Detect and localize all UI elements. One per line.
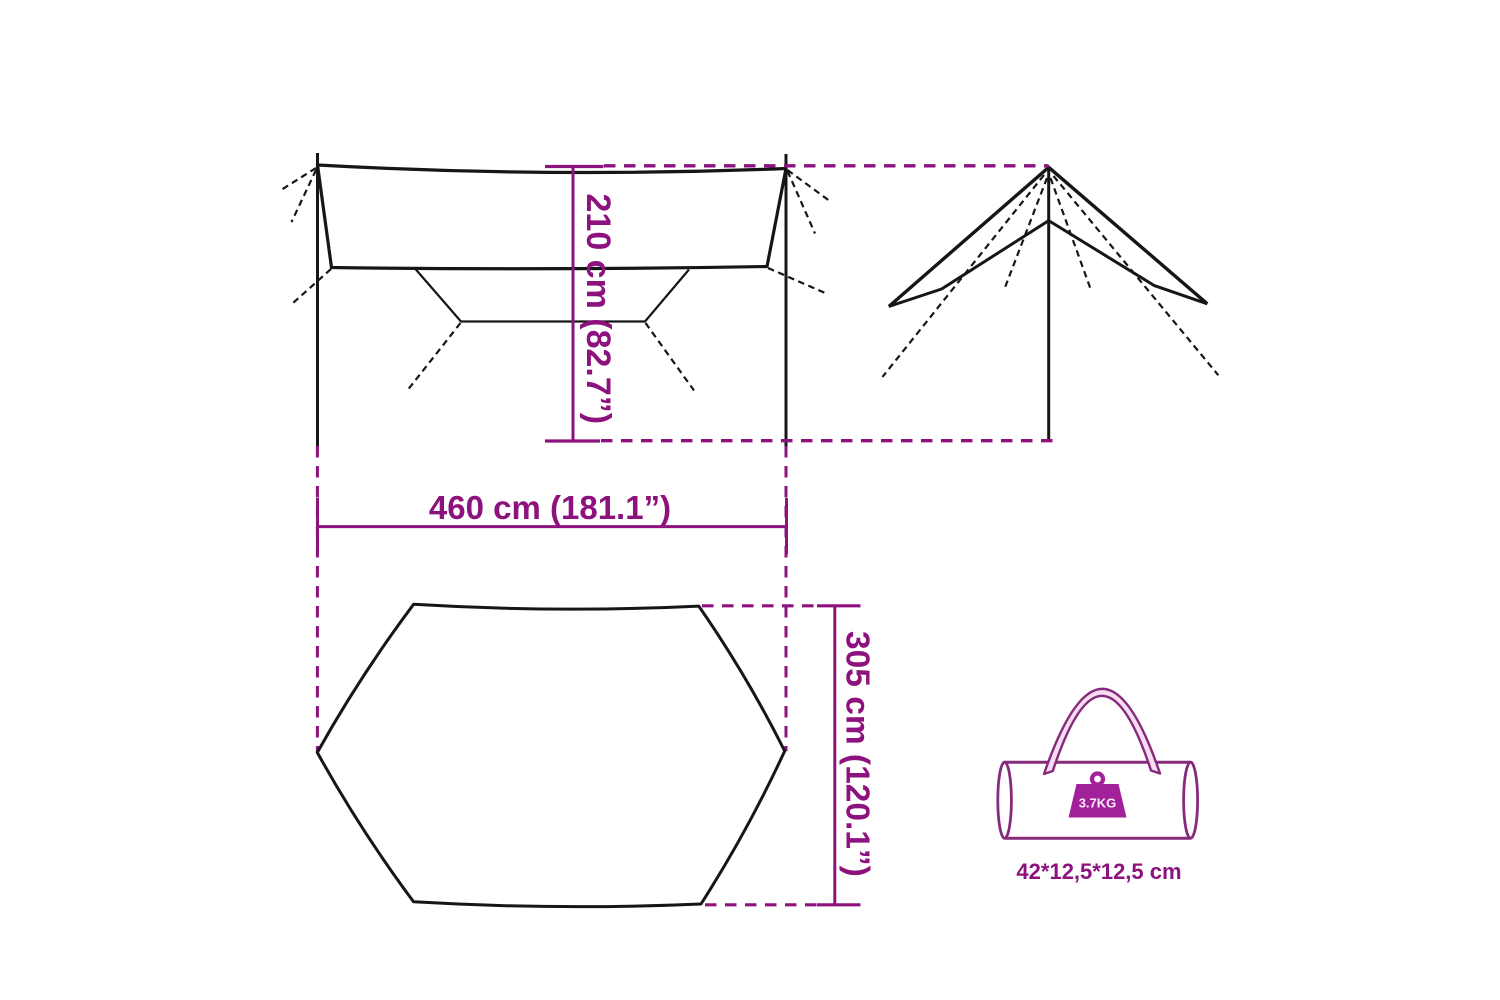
svg-text:42*12,5*12,5 cm: 42*12,5*12,5 cm [1016,859,1181,884]
svg-text:460 cm (181.1”): 460 cm (181.1”) [429,489,671,526]
svg-text:210 cm (82.7”): 210 cm (82.7”) [579,194,617,425]
svg-text:305 cm (120.1”): 305 cm (120.1”) [839,631,876,877]
svg-text:3.7KG: 3.7KG [1079,796,1117,811]
